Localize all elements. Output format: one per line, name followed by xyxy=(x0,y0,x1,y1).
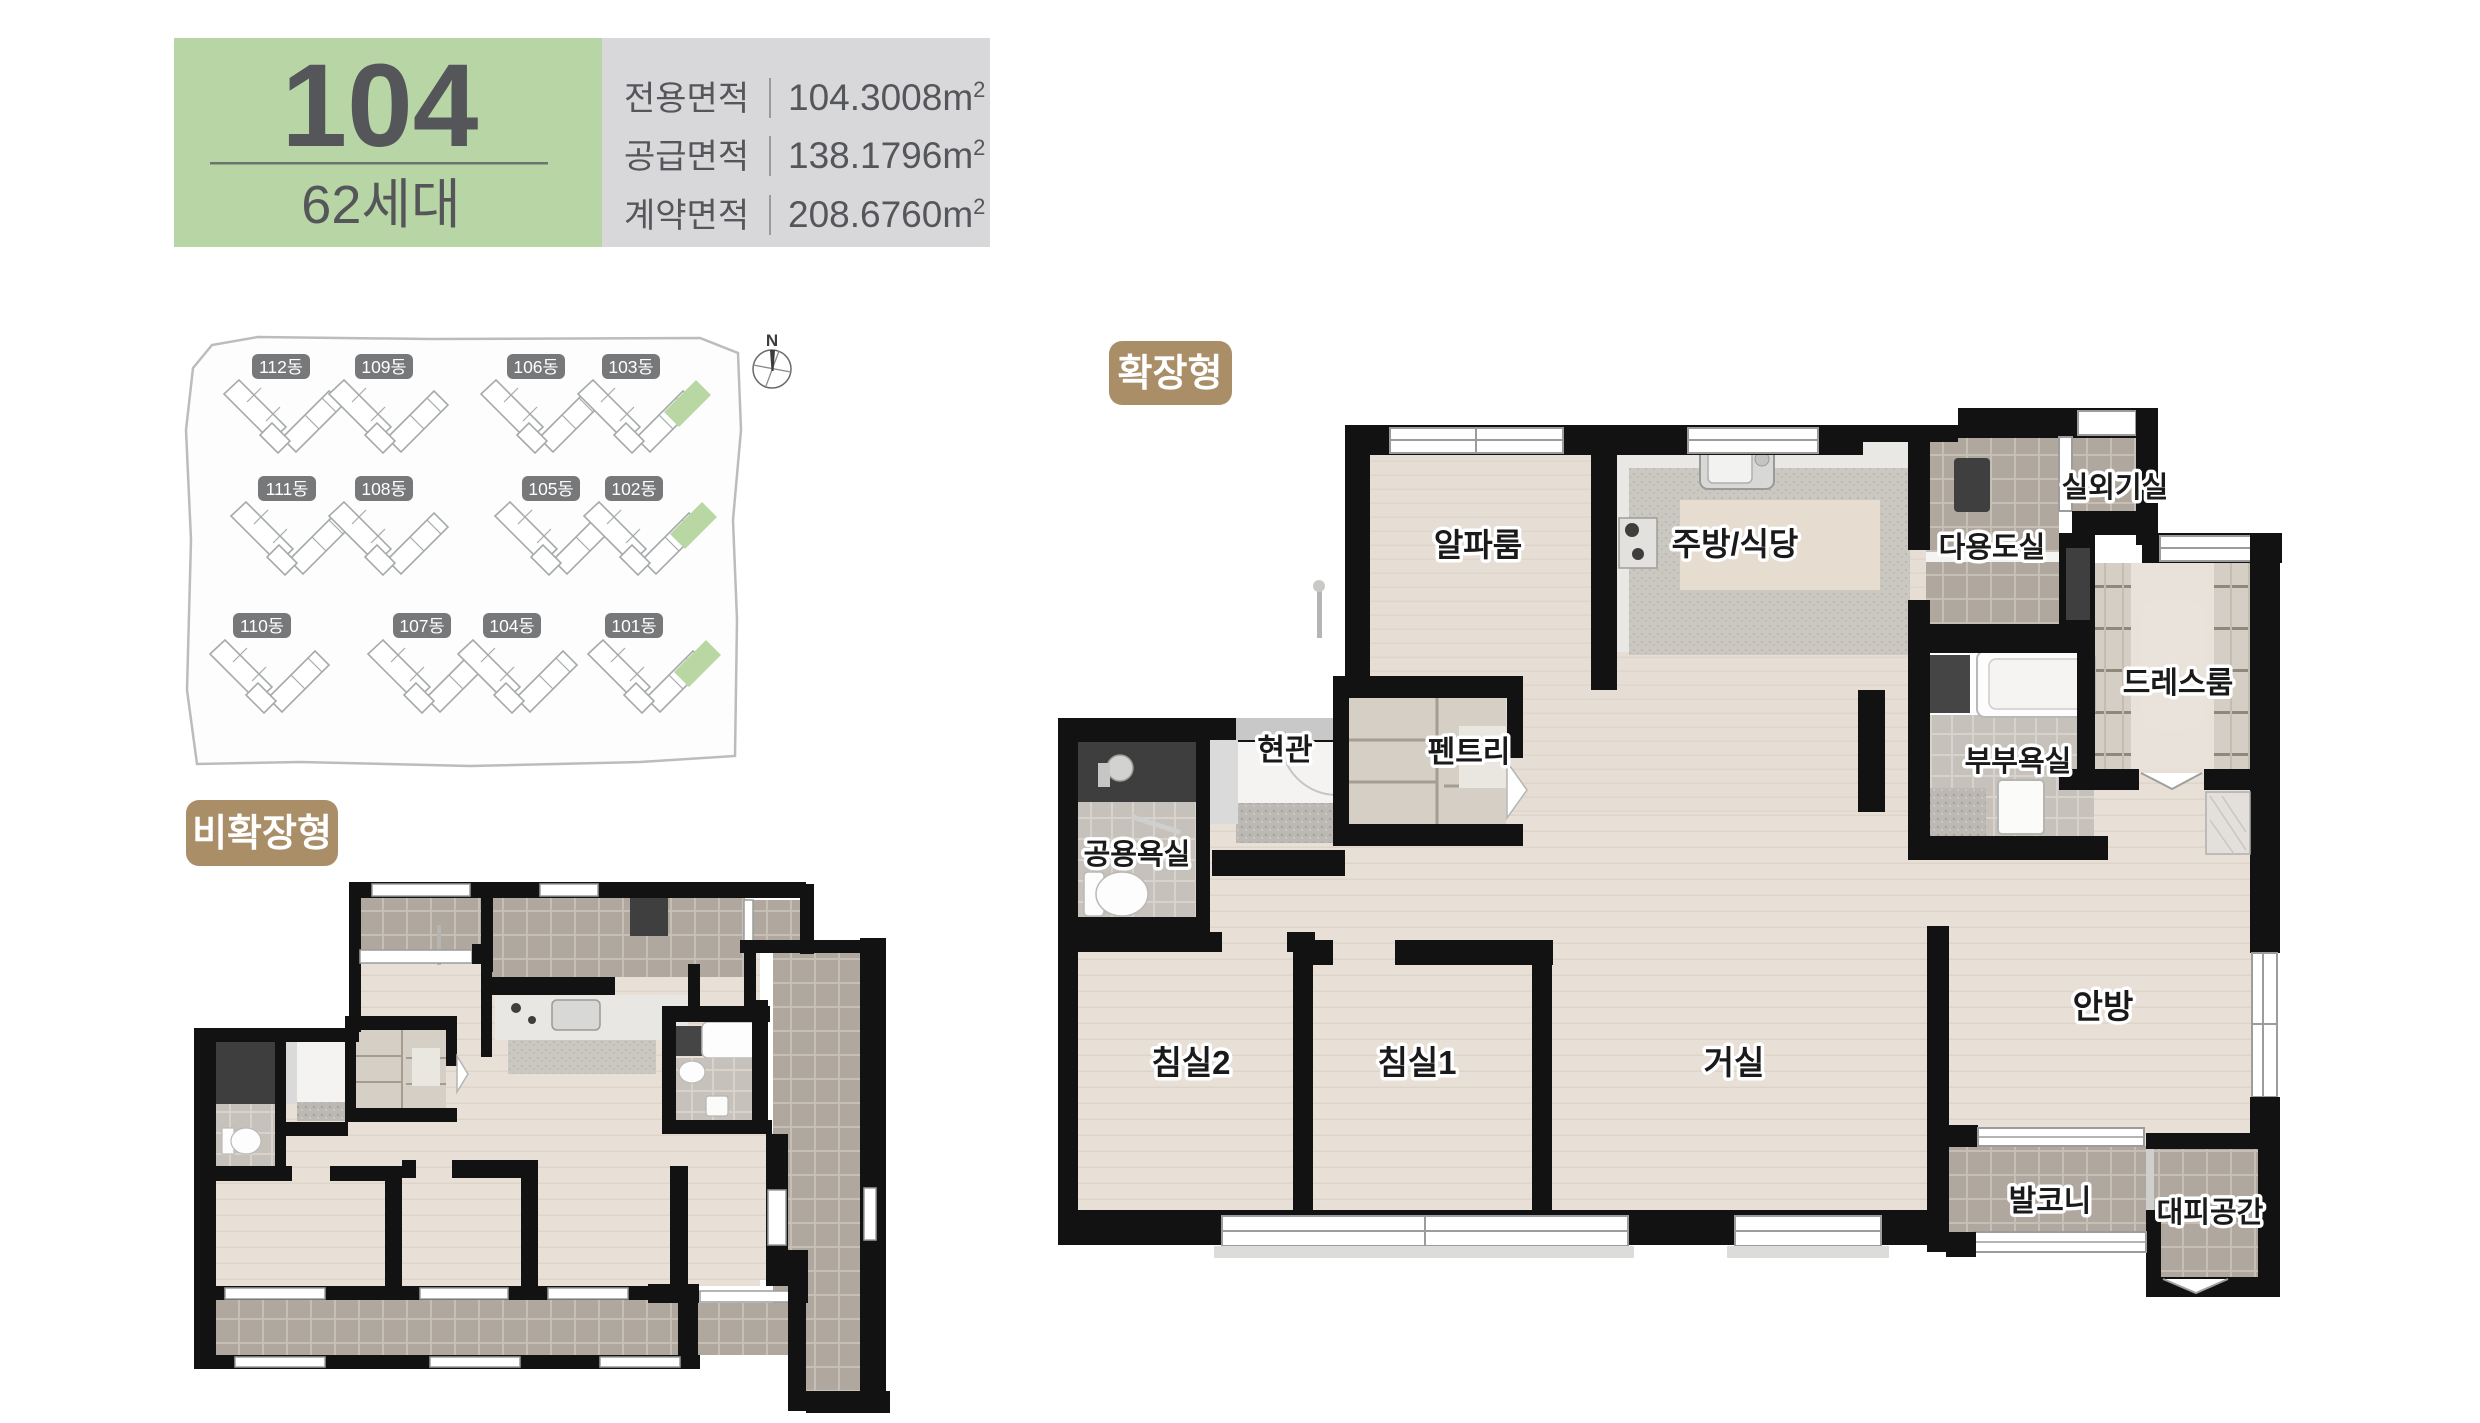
svg-text:비확장형: 비확장형 xyxy=(192,813,332,855)
svg-text:138.1796m2: 138.1796m2 xyxy=(788,135,985,176)
svg-text:112동: 112동 xyxy=(259,357,303,377)
svg-text:102동: 102동 xyxy=(611,479,656,499)
svg-text:침실2: 침실2 xyxy=(1151,1044,1230,1081)
svg-text:대피공간: 대피공간 xyxy=(2157,1196,2264,1229)
svg-text:주방/식당: 주방/식당 xyxy=(1672,526,1799,562)
svg-text:N: N xyxy=(766,331,778,350)
svg-text:104: 104 xyxy=(282,40,479,172)
svg-text:110동: 110동 xyxy=(240,616,284,636)
svg-text:108동: 108동 xyxy=(361,479,406,499)
svg-text:부부욕실: 부부욕실 xyxy=(1965,745,2072,778)
svg-text:전용면적: 전용면적 xyxy=(624,80,749,118)
svg-text:실외기실: 실외기실 xyxy=(2062,471,2169,504)
svg-text:안방: 안방 xyxy=(2073,988,2134,1025)
svg-text:확장형: 확장형 xyxy=(1118,353,1223,395)
svg-text:계약면적: 계약면적 xyxy=(624,197,749,235)
svg-text:침실1: 침실1 xyxy=(1377,1044,1456,1081)
svg-text:103동: 103동 xyxy=(608,357,653,377)
svg-text:109동: 109동 xyxy=(361,357,406,377)
svg-text:알파룸: 알파룸 xyxy=(1434,527,1522,563)
svg-text:62세대: 62세대 xyxy=(301,175,460,235)
svg-text:펜트리: 펜트리 xyxy=(1428,736,1511,769)
svg-text:111동: 111동 xyxy=(266,479,309,499)
svg-text:104.3008m2: 104.3008m2 xyxy=(788,77,985,118)
svg-text:공급면적: 공급면적 xyxy=(624,138,749,176)
svg-text:104동: 104동 xyxy=(489,616,534,636)
svg-text:드레스룸: 드레스룸 xyxy=(2123,667,2233,700)
svg-text:101동: 101동 xyxy=(611,616,656,636)
svg-text:107동: 107동 xyxy=(399,616,444,636)
svg-text:105동: 105동 xyxy=(528,479,573,499)
svg-text:거실: 거실 xyxy=(1704,1044,1765,1081)
svg-text:106동: 106동 xyxy=(513,357,558,377)
svg-text:발코니: 발코니 xyxy=(2009,1185,2092,1218)
svg-text:208.6760m2: 208.6760m2 xyxy=(788,194,985,235)
svg-text:공용욕실: 공용욕실 xyxy=(1084,838,1191,871)
svg-text:다용도실: 다용도실 xyxy=(1939,531,2046,564)
svg-text:현관: 현관 xyxy=(1257,734,1312,767)
